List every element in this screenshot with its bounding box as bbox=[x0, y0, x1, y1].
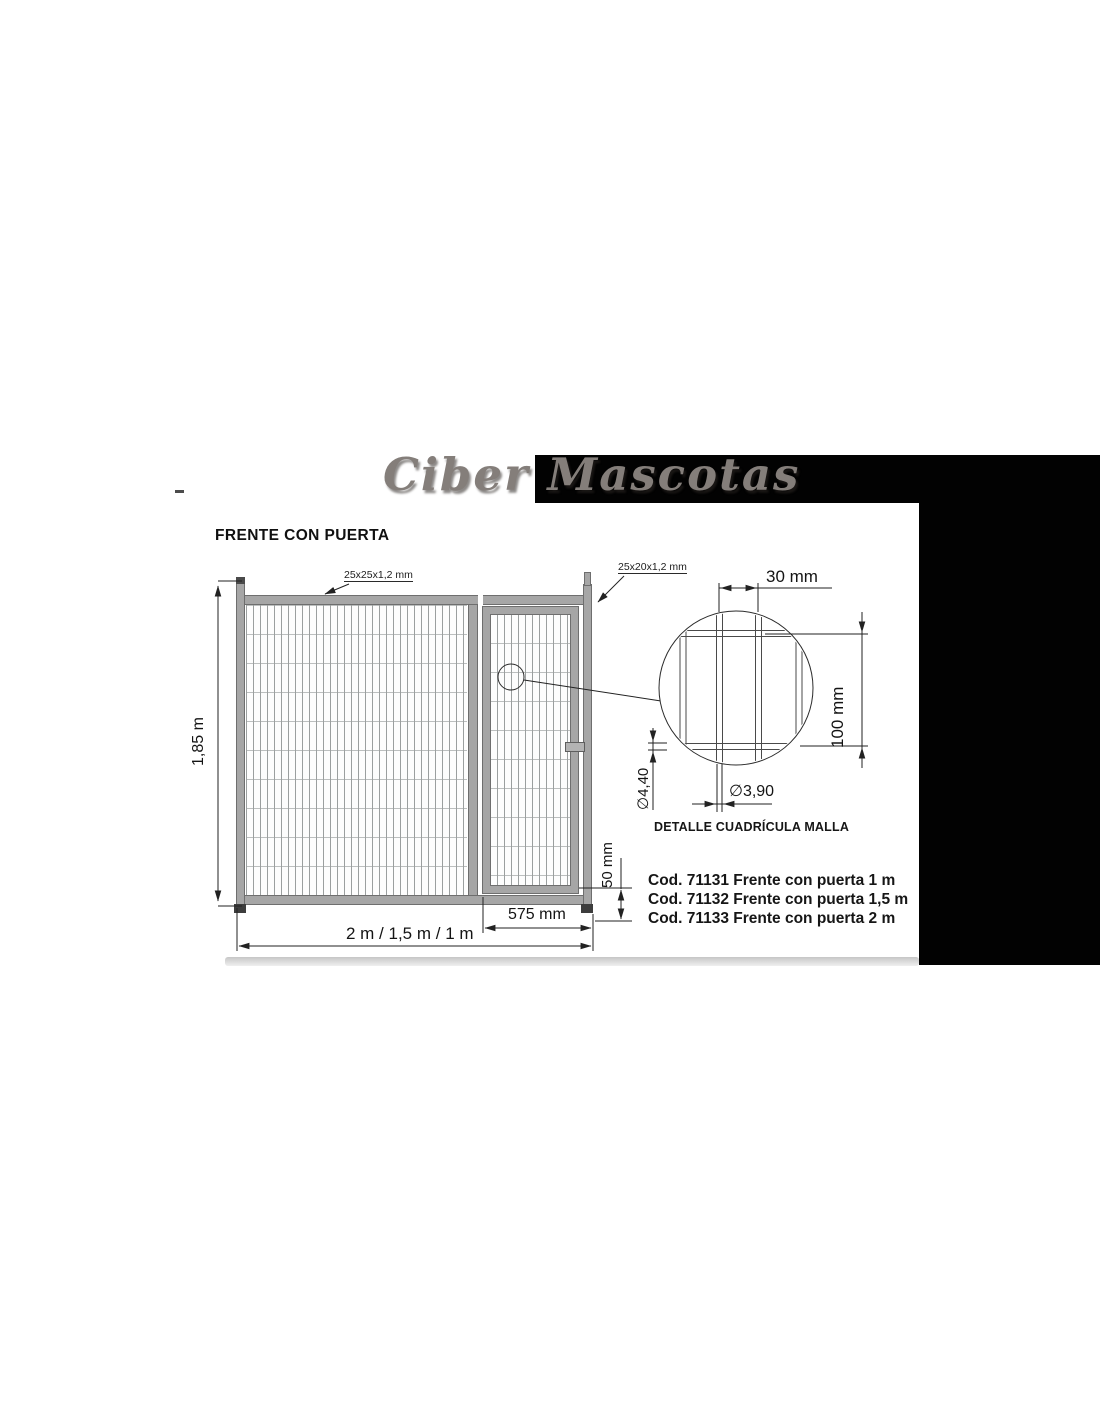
height-dimension bbox=[218, 581, 242, 906]
frame-profile-door-label: 25x20x1,2 mm bbox=[618, 561, 687, 574]
detail-caption: DETALLE CUADRÍCULA MALLA bbox=[654, 820, 849, 834]
brand-logo: Ciber Mascotas bbox=[383, 448, 800, 501]
product-code-list: Cod. 71131 Frente con puerta 1 m Cod. 71… bbox=[648, 871, 908, 928]
bottom-gap-label: 50 mm bbox=[599, 842, 616, 888]
mesh-cell-height-label: 100 mm bbox=[828, 687, 848, 748]
product-code-2: Cod. 71132 Frente con puerta 1,5 m bbox=[648, 890, 908, 909]
mesh-cell-width-label: 30 mm bbox=[766, 567, 818, 587]
wire-diameter-vertical-label: ∅3,90 bbox=[729, 781, 774, 801]
product-code-1: Cod. 71131 Frente con puerta 1 m bbox=[648, 871, 908, 890]
dimension-linework bbox=[0, 0, 1100, 1422]
main-profile-leader bbox=[325, 584, 349, 594]
panel-height-label: 1,85 m bbox=[190, 717, 208, 766]
mesh-width-dimension bbox=[719, 583, 832, 612]
frame-profile-main-label: 25x25x1,2 mm bbox=[344, 569, 413, 582]
page-canvas: Ciber Mascotas FRENTE CON PUERTA bbox=[0, 0, 1100, 1422]
page-title: FRENTE CON PUERTA bbox=[215, 527, 389, 545]
detail-leader-line bbox=[524, 680, 661, 701]
wire-diameter-horizontal-label: ∅4,40 bbox=[634, 768, 652, 810]
door-profile-leader bbox=[598, 576, 624, 602]
product-code-3: Cod. 71133 Frente con puerta 2 m bbox=[648, 909, 908, 928]
door-width-label: 575 mm bbox=[508, 906, 566, 924]
mesh-sample-circle bbox=[498, 664, 524, 690]
panel-width-label: 2 m / 1,5 m / 1 m bbox=[346, 924, 474, 944]
